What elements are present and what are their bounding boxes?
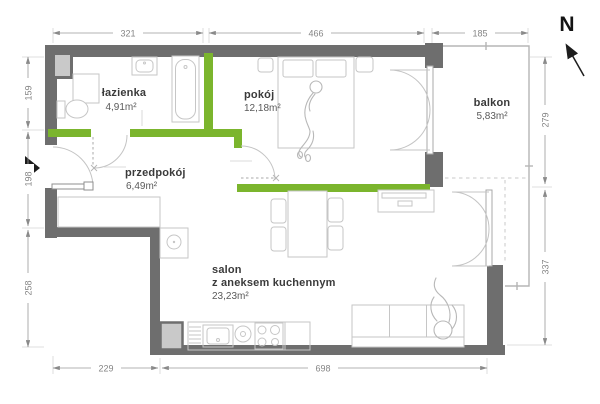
room-area-przedpokoj: 6,49m² [126, 181, 158, 192]
kitchen-fixture-dot [241, 332, 246, 337]
burner [271, 326, 280, 335]
boiler-dot [173, 241, 175, 243]
dining-table [288, 191, 327, 257]
toilet-tank [57, 101, 65, 118]
door-swing-arc [390, 70, 430, 110]
burner [272, 339, 279, 346]
wall-right-salon [487, 265, 503, 355]
dim-bottom-698: 698 [315, 364, 330, 374]
floor-plan-svg: łazienka 4,91m² pokój 12,18m² przedpokój… [0, 0, 600, 404]
nightstand [258, 58, 273, 72]
wall-step-horizontal [45, 227, 160, 237]
hallway-wardrobe [58, 197, 160, 227]
north-arrow [567, 46, 584, 76]
entrance-door [25, 147, 93, 190]
wall-block-pokoj-mid [425, 152, 443, 187]
dim-left-159: 159 [24, 85, 34, 100]
balcony-door-pokoj [390, 66, 433, 154]
wall-block-pokoj-top [425, 43, 443, 68]
bathroom-door [91, 135, 127, 171]
chair [328, 226, 343, 250]
nightstand [356, 57, 373, 72]
kitchen-fixture [235, 326, 251, 342]
dim-bottom-229: 229 [98, 364, 113, 374]
salon-furniture [160, 190, 464, 350]
door-swing-arc [94, 135, 127, 168]
shaft-wall-h [55, 76, 73, 79]
door-swing-arc [390, 110, 430, 150]
room-label-salon: salon [212, 264, 242, 276]
north-compass: N [559, 13, 584, 76]
balcony-door-salon [452, 190, 492, 266]
washing-machine [73, 74, 99, 103]
chair [271, 227, 286, 251]
room-label-przedpokoj: przedpokój [125, 167, 186, 179]
kitchen-sink-drain [217, 339, 220, 342]
dim-top-321: 321 [120, 29, 135, 39]
burner [258, 326, 266, 334]
dim-top-185: 185 [472, 29, 487, 39]
room-label-pokoj: pokój [244, 89, 274, 101]
room-area-salon: 23,23m² [212, 291, 249, 302]
room-label-salon-subtitle: z aneksem kuchennym [212, 277, 336, 289]
room-area-pokoj: 12,18m² [244, 103, 281, 114]
room-label-balkon: balkon [474, 97, 511, 109]
partition-bath-pokoj [204, 53, 213, 129]
door-leaf-end [84, 182, 93, 190]
partition-bath-south-left [48, 129, 91, 137]
partition-pokoj-stub [234, 137, 242, 148]
wall-top [45, 45, 430, 57]
kitchen-radiator-lines [189, 327, 201, 343]
dim-right-337: 337 [541, 259, 551, 274]
floor-plan: łazienka 4,91m² pokój 12,18m² przedpokój… [0, 0, 600, 404]
door-swing-arc [452, 192, 489, 229]
kitchen-shaft [161, 323, 183, 350]
chair [328, 198, 343, 222]
dim-top-466: 466 [308, 29, 323, 39]
room-area-lazienka: 4,91m² [105, 102, 137, 113]
north-label: N [559, 13, 574, 36]
partition-walls [48, 53, 430, 192]
dim-left-258: 258 [24, 280, 34, 295]
dim-left-198: 198 [24, 171, 34, 186]
room-area-balkon: 5,83m² [476, 111, 508, 122]
partition-bath-south-right [130, 129, 242, 137]
burner [258, 338, 266, 346]
wall-step-vertical [150, 227, 160, 355]
door-leaf [52, 184, 85, 189]
bathroom-shaft [55, 55, 70, 76]
door-swing-arc [241, 146, 275, 180]
door-swing-arc [53, 147, 93, 187]
chair [271, 199, 286, 223]
sofa [352, 305, 464, 347]
pokoj-door [241, 146, 279, 181]
door-swing-arc [452, 229, 489, 266]
room-label-lazienka: łazienka [102, 87, 147, 99]
dim-right-279: 279 [541, 112, 551, 127]
toilet-bowl [66, 100, 88, 118]
